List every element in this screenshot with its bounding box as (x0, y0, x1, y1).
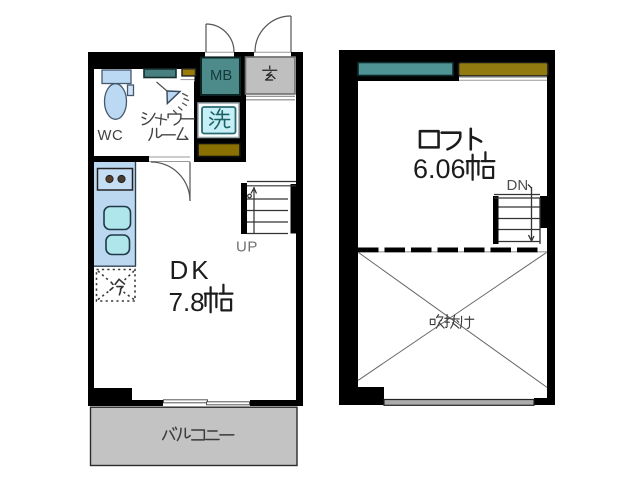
svg-text:DN: DN (507, 177, 529, 194)
svg-text:MB: MB (210, 68, 232, 84)
svg-text:7.8: 7.8 (169, 287, 205, 317)
svg-text:WC: WC (98, 128, 124, 144)
svg-text:UP: UP (236, 239, 258, 256)
svg-text:DK: DK (170, 255, 212, 285)
svg-text:6.06: 6.06 (413, 154, 466, 184)
